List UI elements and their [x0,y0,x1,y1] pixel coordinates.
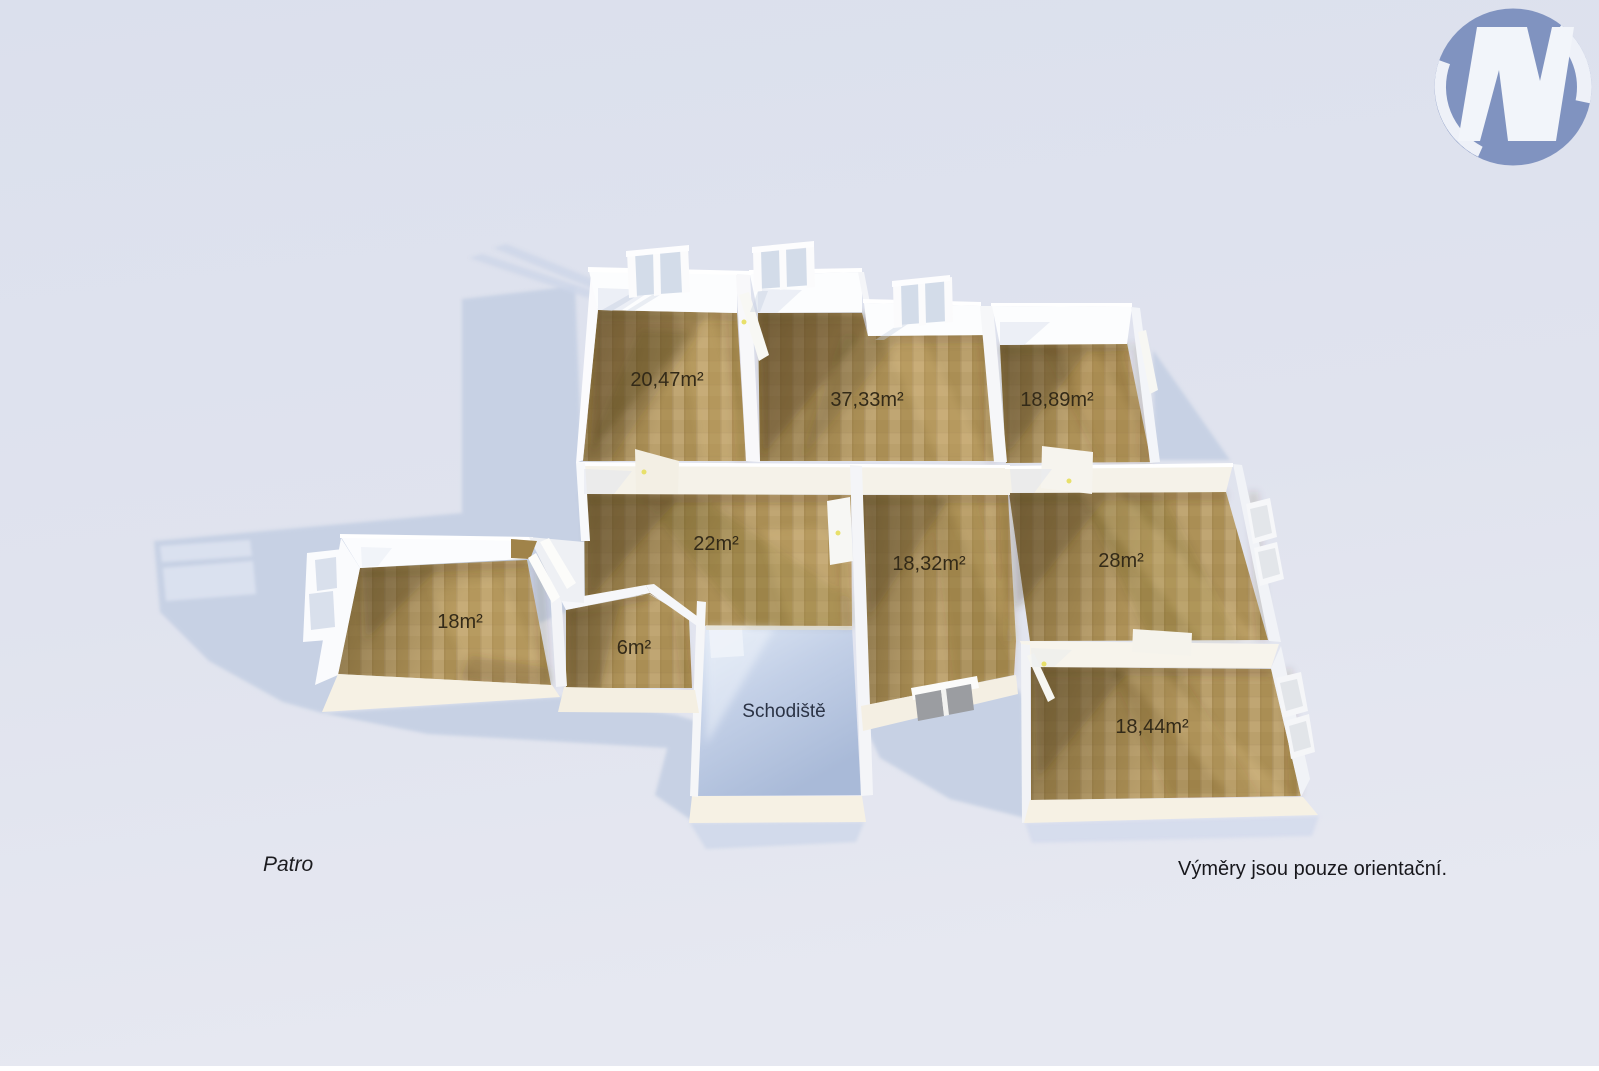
svg-text:18,32m²: 18,32m² [892,553,966,575]
svg-text:28m²: 28m² [1098,550,1144,572]
svg-text:6m²: 6m² [617,637,652,659]
svg-text:37,33m²: 37,33m² [830,389,904,411]
svg-text:Patro: Patro [263,853,314,876]
svg-text:18,44m²: 18,44m² [1115,716,1189,738]
svg-text:20,47m²: 20,47m² [630,369,704,391]
svg-text:Schodiště: Schodiště [742,701,825,722]
svg-text:22m²: 22m² [693,533,739,555]
svg-text:18,89m²: 18,89m² [1020,389,1094,411]
svg-text:Výměry jsou pouze orientační.: Výměry jsou pouze orientační. [1178,858,1447,880]
svg-text:18m²: 18m² [437,611,483,633]
